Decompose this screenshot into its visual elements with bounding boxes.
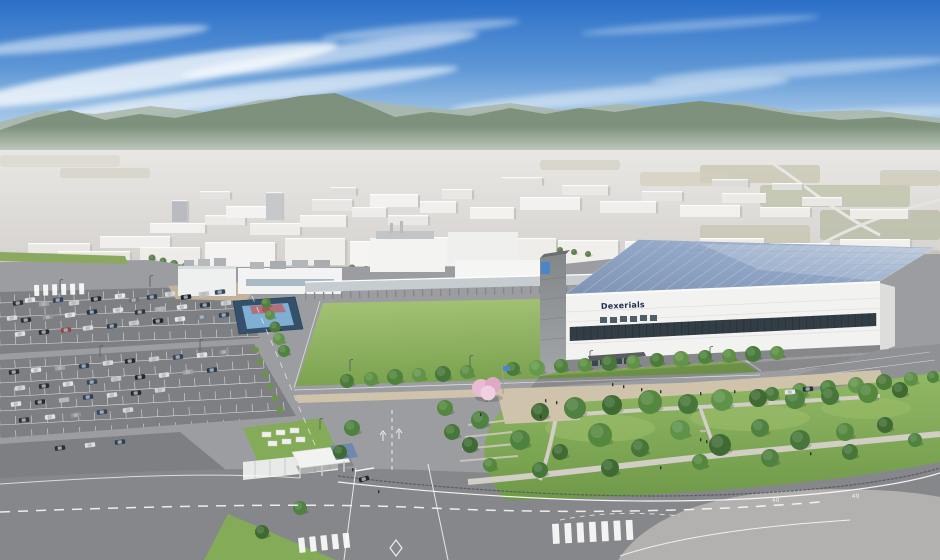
rooftop-hvac (198, 259, 210, 266)
farm-patch (880, 170, 940, 186)
farm-patch (540, 160, 620, 170)
person (660, 390, 661, 393)
farm-patch (0, 155, 120, 167)
distant-building (470, 207, 516, 220)
distant-building (502, 177, 544, 186)
distant-building (562, 185, 610, 196)
distant-building (226, 206, 270, 219)
distant-building (600, 201, 658, 214)
distant-building (420, 201, 458, 214)
rooftop-units (376, 231, 434, 239)
farm-patch (60, 168, 150, 178)
bush (262, 371, 268, 377)
person (378, 490, 379, 493)
rooftop-hvac (292, 260, 308, 268)
distant-building (352, 207, 388, 218)
distant-building (772, 183, 804, 191)
bush (257, 359, 263, 365)
speed-marking: 40 (772, 498, 780, 504)
distant-building (312, 199, 354, 212)
building-side-face (880, 283, 895, 352)
bush (253, 347, 259, 353)
distant-building (802, 197, 844, 207)
distant-building (150, 223, 207, 234)
distant-building (850, 209, 910, 220)
exhaust-stack (400, 221, 403, 233)
distant-building (760, 207, 812, 218)
distant-building (712, 179, 750, 188)
person (556, 401, 557, 404)
rooftop-hvac (184, 260, 194, 266)
rooftop-hvac (270, 261, 286, 269)
speed-marking: 40 (852, 494, 860, 500)
person (734, 390, 735, 393)
car (785, 389, 796, 394)
plant-building (448, 232, 518, 262)
distant-building (300, 215, 348, 228)
person (810, 452, 811, 455)
person (641, 388, 642, 391)
distant-building (200, 191, 232, 200)
bush (267, 383, 273, 389)
rooftop-hvac (250, 262, 264, 269)
person (352, 468, 353, 471)
flag (503, 366, 510, 371)
person (612, 383, 613, 386)
distant-building (442, 189, 474, 200)
person (706, 440, 707, 443)
person (540, 415, 541, 418)
building-sign (541, 262, 550, 274)
cherry-blossom-tree (472, 377, 503, 402)
plant-building (370, 238, 445, 272)
distant-building (250, 223, 302, 236)
distant-building (370, 194, 420, 208)
rooftop-hvac (214, 258, 226, 266)
building-logo: Dexerials (601, 300, 645, 311)
person (480, 413, 481, 416)
distant-building (330, 187, 358, 196)
person (700, 438, 701, 441)
rooftop-hvac (314, 260, 330, 268)
car (803, 386, 814, 391)
distant-building (266, 192, 284, 221)
distant-building (642, 191, 684, 202)
distant-building (520, 197, 582, 211)
distant-building (172, 200, 189, 223)
distant-building (680, 205, 742, 218)
person (623, 385, 624, 388)
distant-building (388, 215, 430, 226)
person (700, 392, 701, 395)
aerial-rendering-canvas: Dexerials (0, 0, 940, 560)
aerial-rendering: Dexerials (0, 0, 940, 560)
roofline (178, 266, 236, 269)
distant-building (722, 193, 768, 204)
distant-building (100, 236, 172, 249)
person (660, 466, 661, 469)
bush (277, 407, 284, 414)
bench (700, 430, 706, 432)
exhaust-stack (390, 223, 393, 233)
person (545, 399, 546, 402)
bush (272, 395, 279, 402)
